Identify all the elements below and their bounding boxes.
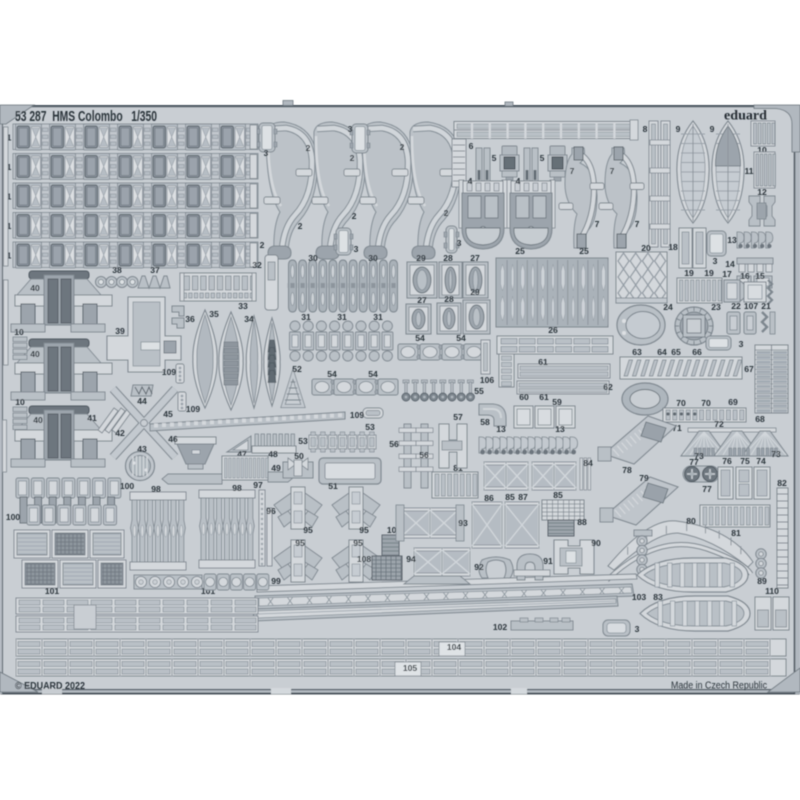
svg-text:31: 31 bbox=[301, 312, 311, 322]
svg-text:3: 3 bbox=[457, 238, 462, 248]
svg-text:25: 25 bbox=[579, 246, 589, 256]
svg-text:64: 64 bbox=[657, 347, 667, 357]
svg-text:7: 7 bbox=[595, 219, 600, 229]
svg-text:84: 84 bbox=[583, 458, 593, 468]
svg-text:110: 110 bbox=[765, 586, 779, 596]
svg-text:31: 31 bbox=[337, 312, 347, 322]
svg-text:98: 98 bbox=[151, 484, 161, 494]
svg-text:10: 10 bbox=[14, 327, 24, 337]
svg-text:95: 95 bbox=[359, 525, 369, 535]
svg-text:99: 99 bbox=[271, 576, 281, 586]
svg-text:83: 83 bbox=[653, 592, 663, 602]
svg-text:7: 7 bbox=[570, 166, 575, 176]
svg-text:66: 66 bbox=[692, 347, 702, 357]
svg-text:68: 68 bbox=[755, 414, 765, 424]
svg-text:105: 105 bbox=[403, 663, 418, 673]
svg-text:67: 67 bbox=[744, 364, 754, 374]
svg-text:5: 5 bbox=[492, 153, 497, 163]
svg-text:108: 108 bbox=[357, 554, 372, 564]
svg-text:9: 9 bbox=[710, 124, 715, 134]
svg-text:38: 38 bbox=[112, 265, 122, 275]
svg-text:94: 94 bbox=[406, 554, 416, 564]
svg-text:17: 17 bbox=[722, 269, 732, 279]
svg-text:2: 2 bbox=[444, 208, 449, 218]
svg-text:8: 8 bbox=[643, 124, 648, 134]
svg-text:74: 74 bbox=[756, 456, 766, 466]
svg-text:86: 86 bbox=[484, 493, 494, 503]
svg-text:14: 14 bbox=[725, 259, 735, 269]
svg-text:40: 40 bbox=[30, 283, 40, 293]
svg-text:89: 89 bbox=[757, 576, 767, 586]
svg-text:24: 24 bbox=[663, 302, 673, 312]
svg-text:54: 54 bbox=[368, 369, 378, 379]
svg-text:42: 42 bbox=[115, 428, 125, 438]
svg-text:35: 35 bbox=[209, 309, 219, 319]
svg-text:85: 85 bbox=[505, 492, 515, 502]
svg-text:70: 70 bbox=[701, 398, 711, 408]
svg-text:26: 26 bbox=[548, 325, 558, 335]
svg-text:© EDUARD 2022: © EDUARD 2022 bbox=[15, 681, 85, 692]
svg-text:3: 3 bbox=[348, 124, 353, 134]
svg-text:102: 102 bbox=[493, 622, 508, 632]
svg-text:60: 60 bbox=[519, 392, 529, 402]
svg-text:13: 13 bbox=[555, 424, 565, 434]
svg-text:106: 106 bbox=[480, 375, 494, 385]
svg-text:7: 7 bbox=[610, 166, 615, 176]
svg-text:49: 49 bbox=[271, 463, 281, 473]
svg-text:54: 54 bbox=[327, 369, 337, 379]
svg-text:90: 90 bbox=[591, 538, 601, 548]
svg-text:3: 3 bbox=[264, 148, 269, 158]
svg-text:55: 55 bbox=[474, 386, 484, 396]
svg-text:101: 101 bbox=[45, 586, 60, 596]
svg-text:15: 15 bbox=[755, 271, 765, 281]
svg-text:3: 3 bbox=[739, 339, 744, 349]
svg-text:39: 39 bbox=[115, 326, 125, 336]
svg-text:73: 73 bbox=[771, 449, 781, 459]
svg-text:95: 95 bbox=[353, 538, 363, 548]
svg-text:19: 19 bbox=[684, 268, 694, 278]
svg-text:46: 46 bbox=[168, 434, 178, 444]
svg-text:51: 51 bbox=[328, 481, 338, 491]
svg-text:56: 56 bbox=[389, 439, 399, 449]
svg-text:109: 109 bbox=[186, 404, 200, 414]
svg-text:65: 65 bbox=[671, 347, 681, 357]
svg-text:48: 48 bbox=[268, 449, 278, 459]
svg-text:100: 100 bbox=[120, 481, 135, 491]
svg-text:2: 2 bbox=[400, 142, 405, 152]
svg-text:40: 40 bbox=[33, 415, 43, 425]
svg-text:103: 103 bbox=[632, 592, 647, 602]
svg-text:95: 95 bbox=[303, 525, 313, 535]
svg-text:23: 23 bbox=[711, 302, 721, 312]
svg-text:91: 91 bbox=[543, 556, 553, 566]
svg-text:11: 11 bbox=[744, 166, 753, 176]
svg-text:52: 52 bbox=[292, 364, 302, 374]
svg-text:2: 2 bbox=[298, 221, 303, 231]
svg-text:37: 37 bbox=[150, 265, 160, 275]
svg-text:31: 31 bbox=[373, 312, 383, 322]
svg-text:62: 62 bbox=[603, 382, 613, 392]
svg-text:53 287 HMS Colombo 1/350: 53 287 HMS Colombo 1/350 bbox=[15, 109, 157, 125]
svg-text:69: 69 bbox=[728, 397, 738, 407]
svg-text:22: 22 bbox=[731, 301, 741, 311]
svg-text:80: 80 bbox=[686, 516, 696, 526]
svg-text:12: 12 bbox=[757, 187, 767, 197]
svg-text:97: 97 bbox=[253, 480, 263, 490]
svg-text:77: 77 bbox=[702, 484, 712, 494]
svg-text:Made in Czech Republic: Made in Czech Republic bbox=[671, 681, 767, 692]
svg-text:20: 20 bbox=[641, 243, 651, 253]
svg-text:16: 16 bbox=[740, 271, 750, 281]
svg-text:87: 87 bbox=[518, 492, 528, 502]
svg-text:29: 29 bbox=[416, 253, 426, 263]
svg-text:3: 3 bbox=[713, 256, 718, 266]
svg-text:85: 85 bbox=[553, 490, 563, 500]
svg-text:36: 36 bbox=[185, 314, 195, 324]
svg-text:32: 32 bbox=[252, 260, 262, 270]
svg-text:9: 9 bbox=[676, 124, 681, 134]
svg-text:28: 28 bbox=[443, 253, 453, 263]
svg-text:82: 82 bbox=[777, 478, 787, 488]
svg-text:2: 2 bbox=[306, 143, 311, 153]
svg-text:93: 93 bbox=[458, 518, 468, 528]
svg-text:5: 5 bbox=[540, 153, 545, 163]
svg-text:50: 50 bbox=[294, 451, 304, 461]
svg-text:92: 92 bbox=[474, 562, 484, 572]
svg-text:3: 3 bbox=[354, 244, 359, 254]
svg-text:61: 61 bbox=[539, 392, 549, 402]
svg-text:109: 109 bbox=[162, 367, 176, 377]
svg-text:4: 4 bbox=[516, 176, 521, 186]
svg-text:4: 4 bbox=[468, 176, 473, 186]
svg-text:53: 53 bbox=[298, 436, 308, 446]
svg-text:81: 81 bbox=[731, 528, 741, 538]
svg-text:18: 18 bbox=[668, 242, 678, 252]
svg-text:13: 13 bbox=[496, 424, 506, 434]
svg-text:75: 75 bbox=[740, 456, 750, 466]
svg-text:56: 56 bbox=[419, 450, 429, 460]
svg-text:58: 58 bbox=[480, 417, 490, 427]
svg-text:95: 95 bbox=[295, 538, 305, 548]
svg-text:40: 40 bbox=[30, 349, 40, 359]
svg-text:10: 10 bbox=[15, 397, 25, 407]
svg-text:28: 28 bbox=[444, 294, 454, 304]
svg-text:78: 78 bbox=[622, 465, 632, 475]
svg-text:57: 57 bbox=[453, 412, 463, 422]
svg-text:96: 96 bbox=[266, 506, 276, 516]
svg-text:25: 25 bbox=[515, 246, 525, 256]
svg-text:44: 44 bbox=[137, 396, 147, 406]
svg-text:21: 21 bbox=[761, 301, 771, 311]
svg-text:34: 34 bbox=[244, 314, 254, 324]
svg-text:79: 79 bbox=[639, 473, 649, 483]
svg-text:3: 3 bbox=[635, 624, 640, 634]
svg-text:98: 98 bbox=[232, 483, 242, 493]
svg-text:2: 2 bbox=[260, 240, 265, 250]
svg-text:2: 2 bbox=[350, 153, 355, 163]
svg-text:107: 107 bbox=[744, 301, 758, 311]
svg-text:19: 19 bbox=[704, 268, 714, 278]
svg-text:13: 13 bbox=[727, 235, 737, 245]
svg-text:2: 2 bbox=[352, 211, 357, 221]
svg-text:72: 72 bbox=[714, 419, 724, 429]
svg-text:43: 43 bbox=[137, 444, 147, 454]
svg-text:6: 6 bbox=[469, 141, 474, 151]
svg-text:59: 59 bbox=[552, 397, 562, 407]
svg-text:53: 53 bbox=[365, 422, 375, 432]
svg-text:100: 100 bbox=[6, 512, 21, 522]
svg-text:70: 70 bbox=[676, 398, 686, 408]
svg-text:88: 88 bbox=[577, 517, 587, 527]
svg-text:30: 30 bbox=[308, 253, 318, 263]
svg-text:61: 61 bbox=[538, 357, 548, 367]
svg-text:29: 29 bbox=[470, 287, 480, 297]
svg-text:109: 109 bbox=[350, 410, 364, 420]
svg-text:63: 63 bbox=[632, 347, 642, 357]
svg-text:104: 104 bbox=[447, 642, 462, 652]
svg-text:7: 7 bbox=[635, 219, 640, 229]
svg-text:76: 76 bbox=[722, 456, 732, 466]
svg-text:27: 27 bbox=[470, 253, 480, 263]
svg-text:27: 27 bbox=[417, 295, 427, 305]
svg-text:33: 33 bbox=[238, 301, 248, 311]
svg-text:45: 45 bbox=[163, 409, 173, 419]
svg-text:77: 77 bbox=[689, 457, 699, 467]
svg-text:30: 30 bbox=[368, 253, 378, 263]
svg-text:41: 41 bbox=[87, 413, 97, 423]
